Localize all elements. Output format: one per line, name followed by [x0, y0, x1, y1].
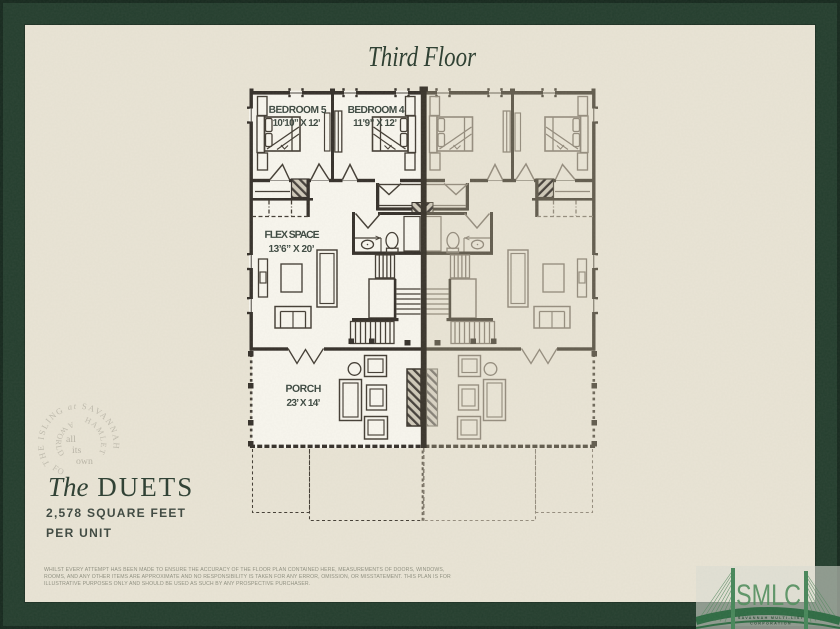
- svg-text:PER UNIT: PER UNIT: [46, 526, 112, 540]
- svg-text:11’9” X 12’: 11’9” X 12’: [353, 118, 397, 129]
- svg-text:FLEX SPACE: FLEX SPACE: [265, 230, 320, 241]
- svg-text:10’10” X 12’: 10’10” X 12’: [273, 118, 321, 129]
- svg-text:SMLC: SMLC: [736, 579, 801, 612]
- svg-text:23’ X 14’: 23’ X 14’: [286, 398, 320, 409]
- svg-text:its: its: [72, 445, 81, 456]
- svg-text:all: all: [66, 434, 76, 445]
- svg-text:SAVANNAH MULTI-LIST: SAVANNAH MULTI-LIST: [738, 616, 804, 620]
- svg-text:Third Floor: Third Floor: [368, 42, 476, 73]
- svg-text:13’6” X 20’: 13’6” X 20’: [269, 244, 315, 255]
- svg-text:2,578 SQUARE FEET: 2,578 SQUARE FEET: [46, 506, 186, 520]
- svg-text:BEDROOM 4: BEDROOM 4: [348, 105, 405, 116]
- svg-text:own: own: [76, 456, 93, 467]
- svg-text:PORCH: PORCH: [285, 384, 321, 395]
- svg-text:CORPORATION: CORPORATION: [750, 622, 792, 626]
- svg-text:BEDROOM 5: BEDROOM 5: [269, 105, 327, 116]
- svg-text:The DUETS: The DUETS: [48, 472, 194, 502]
